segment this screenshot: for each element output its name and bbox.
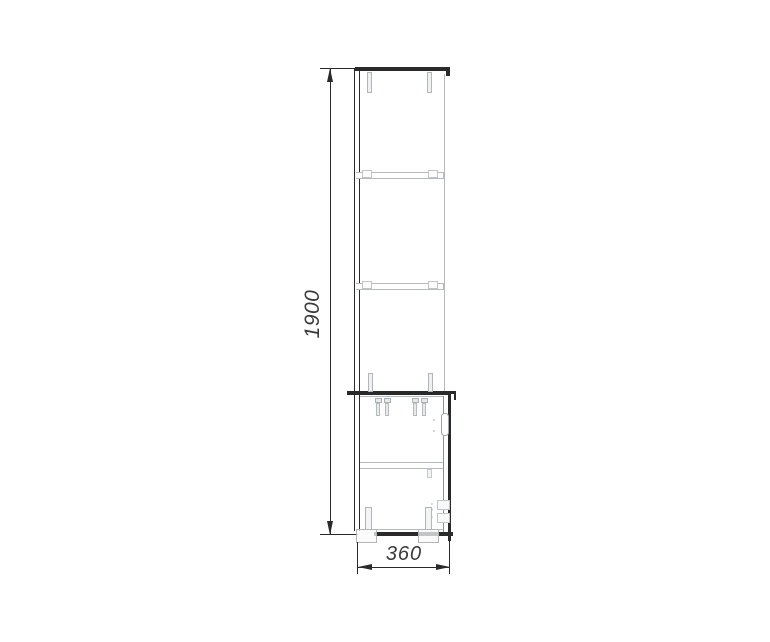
cabinet-top-panel [355, 67, 448, 71]
cabinet-back-panel-line [354, 68, 359, 531]
shelf-pin [428, 281, 439, 290]
foot-stem-right [425, 507, 431, 530]
lower-unit-top-panel [347, 391, 451, 395]
screw-icon [413, 403, 416, 416]
adjustable-foot-right [418, 529, 439, 544]
height-extension-line-top [320, 68, 356, 69]
height-extension-line-bottom [320, 534, 358, 535]
shelf-pin [427, 469, 432, 478]
shelf-pin [362, 170, 373, 179]
cabinet-front-edge-upper [444, 74, 445, 392]
screw-icon [376, 403, 379, 416]
top-fitting-peg-left [367, 72, 373, 93]
dimension-height-label: 1900 [300, 283, 326, 345]
shelf-pin [362, 281, 373, 290]
drawing-canvas: 1900 [0, 0, 770, 642]
dimension-depth-label: 360 [372, 544, 436, 565]
screw-icon [422, 403, 425, 416]
arrow-up-icon [327, 68, 333, 82]
shelf-pin [428, 170, 439, 179]
top-fitting-peg-right [427, 72, 433, 93]
arrow-right-icon [436, 564, 450, 570]
bottom-front-edge [374, 532, 453, 536]
adjustable-foot-left [356, 529, 377, 544]
lower-unit-top-edge-drop [454, 394, 456, 400]
foot-stem-left [365, 507, 371, 530]
hinge-screw-dot [431, 503, 433, 505]
screw-icon [385, 403, 388, 416]
door-handle [441, 413, 449, 437]
arrow-down-icon [327, 521, 333, 535]
hinge-plate [437, 500, 451, 510]
connecting-dowel-left [368, 373, 374, 392]
hinge-plate [437, 513, 451, 523]
handle-screw-dot [433, 419, 435, 421]
connecting-dowel-right [428, 373, 434, 392]
cabinet-top-panel-edge [446, 67, 449, 76]
arrow-left-icon [358, 564, 372, 570]
height-dimension-line [330, 68, 331, 535]
lower-unit-top-underside [360, 396, 444, 397]
handle-screw-dot [433, 430, 435, 432]
